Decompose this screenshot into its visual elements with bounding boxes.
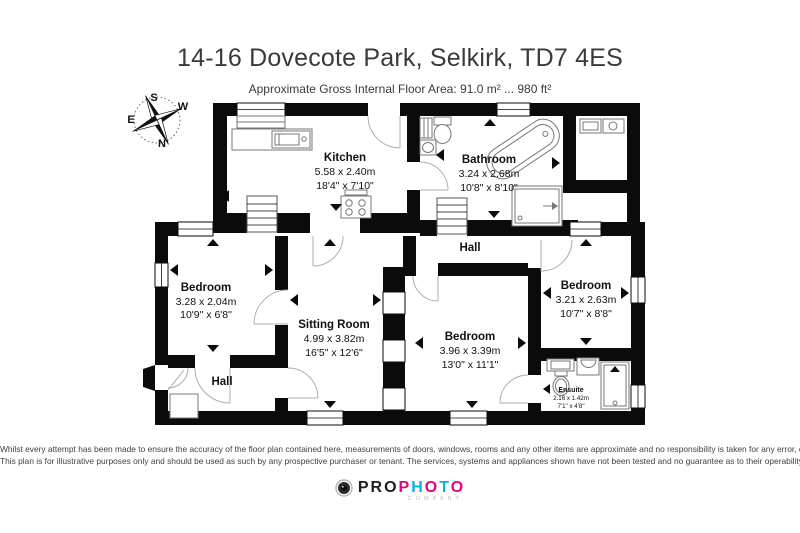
window-bedroom-middle-bottom	[450, 411, 487, 425]
window-left-wall	[155, 263, 168, 287]
door-kitchen	[368, 116, 400, 148]
disclaimer-line-2: This plan is for illustrative purposes o…	[0, 456, 800, 466]
window-right-wall-bedroom	[631, 277, 645, 303]
door-ensuite	[500, 375, 528, 403]
compass-west: W	[178, 101, 189, 113]
toilet-cistern	[434, 117, 451, 125]
door-kitchen-sitting	[313, 236, 343, 266]
bedroom-middle-label: Bedroom	[445, 331, 495, 343]
window-bathroom-top	[497, 103, 530, 116]
hall-cupboard	[170, 394, 198, 418]
stairs-hall	[437, 198, 467, 234]
door-bedroom-middle	[413, 276, 438, 301]
sitting-room-label: Sitting Room	[298, 319, 370, 331]
kitchen-imperial: 18'4" x 7'10"	[316, 180, 374, 192]
bedroom-right-label: Bedroom	[561, 280, 611, 292]
floorplan-page: 14-16 Dovecote Park, Selkirk, TD7 4ES Ap…	[0, 0, 800, 533]
closet-fixtures	[580, 119, 624, 133]
disclaimer-line-1: Whilst every attempt has been made to en…	[0, 444, 800, 454]
ensuite-label: Ensuite	[558, 387, 583, 394]
door-bedroom-left	[254, 290, 288, 324]
bathroom-imperial: 10'8" x 8'10"	[460, 182, 518, 194]
hall-top-label: Hall	[459, 242, 480, 254]
bedroom-middle-imperial: 13'0" x 11'1"	[442, 359, 499, 371]
door-bathroom	[420, 162, 448, 190]
bedroom-right-imperial: 10'7" x 8'8"	[560, 308, 612, 320]
porch-wedge	[143, 365, 155, 391]
window-sitting-bottom	[307, 411, 343, 425]
bedroom-middle-metric: 3.96 x 3.39m	[440, 345, 501, 357]
bedroom-right-metric: 3.21 x 2.63m	[556, 294, 617, 306]
kitchen-hob	[341, 196, 371, 218]
sitting-room-imperial: 16'5" x 12'6"	[305, 347, 363, 359]
hall-bottom-label: Hall	[211, 376, 232, 388]
door-entrance	[168, 368, 188, 390]
window-right-wall-shower	[631, 385, 645, 408]
ensuite-imperial: 7'1" x 4'8"	[557, 403, 584, 410]
bathroom-metric: 3.24 x 2.68m	[459, 168, 520, 180]
hall-fixtures	[170, 394, 198, 418]
compass-east: E	[127, 114, 134, 126]
logo-wordmark: PROPHOTO	[358, 479, 465, 496]
compass-rose: S W E N	[121, 84, 193, 156]
logo-text: PROPHOTO COMPANY	[358, 479, 465, 502]
chimney-alcoves	[383, 292, 405, 410]
door-bedroom-right	[541, 240, 572, 271]
logo-pro: PRO	[358, 479, 399, 496]
bedroom-left-label: Bedroom	[181, 282, 231, 294]
bathroom-label: Bathroom	[462, 154, 516, 166]
kitchen-label: Kitchen	[324, 152, 366, 164]
window-bedroom-left-top	[178, 222, 213, 236]
stairs-kitchen	[247, 196, 277, 232]
ensuite-metric: 2.16 x 1.42m	[553, 395, 589, 402]
camera-lens-icon	[335, 479, 353, 502]
window-bedroom-right-top	[570, 222, 601, 236]
compass-north: N	[158, 138, 166, 150]
logo-company: COMPANY	[358, 496, 465, 502]
radiator	[420, 118, 432, 138]
bedroom-left-metric: 3.28 x 2.04m	[176, 296, 237, 308]
sitting-room-metric: 4.99 x 3.82m	[304, 333, 365, 345]
door-hall-sitting	[288, 368, 318, 398]
bedroom-left-imperial: 10'9" x 6'8"	[180, 309, 232, 321]
toilet-bowl	[434, 125, 451, 144]
kitchen-metric: 5.58 x 2.40m	[315, 166, 376, 178]
compass-south: S	[150, 92, 157, 104]
window-kitchen-top	[237, 103, 285, 116]
prophoto-logo: PROPHOTO COMPANY	[0, 479, 800, 502]
